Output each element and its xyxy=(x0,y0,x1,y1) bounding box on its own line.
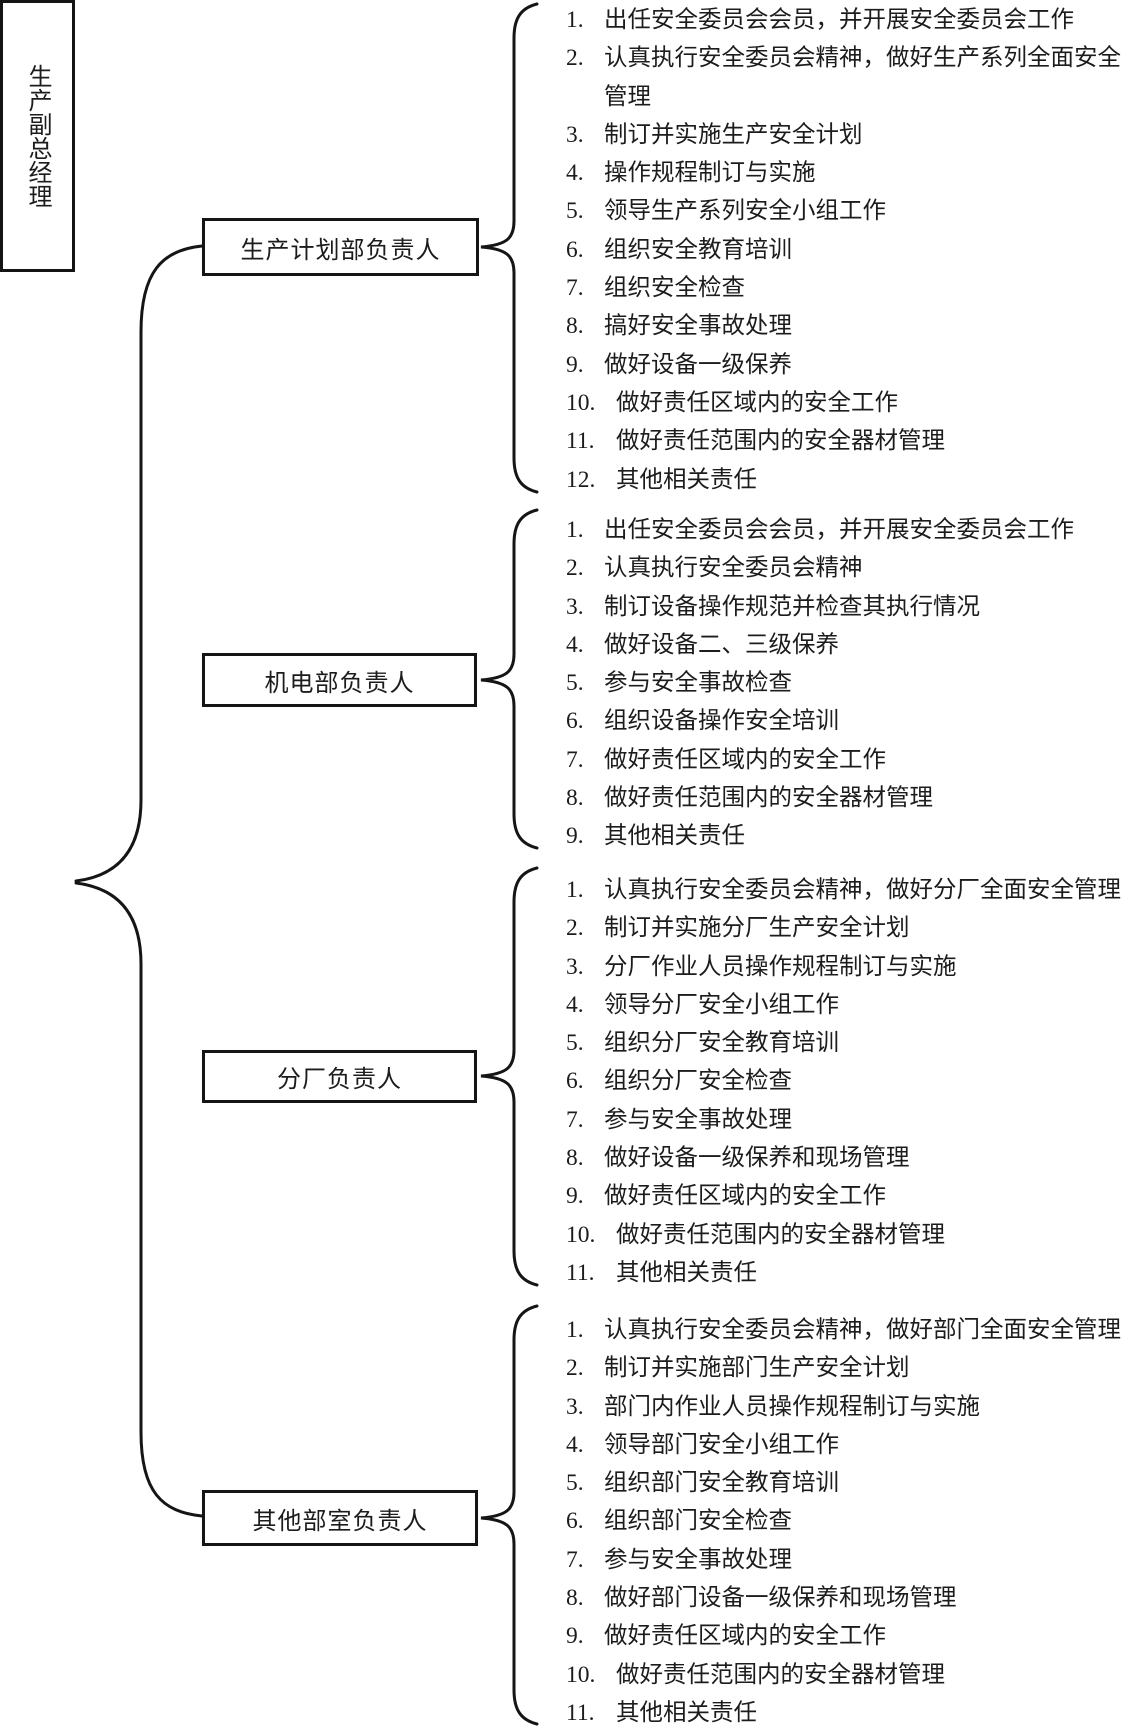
item-text: 参与安全事故处理 xyxy=(604,1541,1127,1579)
brace-icon-group-3 xyxy=(481,868,537,1285)
item-number: 7. xyxy=(566,1101,604,1139)
list-item: 4.领导分厂安全小组工作 xyxy=(566,986,1127,1024)
item-text: 部门内作业人员操作规程制订与实施 xyxy=(604,1388,1127,1426)
root-node-production-vice-gm: 生产副总经理 xyxy=(0,0,75,272)
item-number: 5. xyxy=(566,1464,604,1502)
duty-list-mechanical-electrical: 1.出任安全委员会会员，并开展安全委员会工作2.认真执行安全委员会精神3.制订设… xyxy=(566,511,1127,856)
item-number: 5. xyxy=(566,192,604,230)
list-item: 1.认真执行安全委员会精神，做好分厂全面安全管理 xyxy=(566,871,1127,909)
list-item: 11.做好责任范围内的安全器材管理 xyxy=(566,422,1127,460)
list-item: 7.参与安全事故处理 xyxy=(566,1541,1127,1579)
item-number: 3. xyxy=(566,116,604,154)
item-text: 做好责任范围内的安全器材管理 xyxy=(604,779,1127,817)
item-text: 制订并实施分厂生产安全计划 xyxy=(604,909,1127,947)
list-item: 6.组织安全教育培训 xyxy=(566,231,1127,269)
list-item: 9.做好设备一级保养 xyxy=(566,346,1127,384)
list-item: 4.操作规程制订与实施 xyxy=(566,154,1127,192)
item-number: 9. xyxy=(566,1177,604,1215)
item-number: 3. xyxy=(566,1388,604,1426)
item-number: 6. xyxy=(566,1502,604,1540)
item-text: 其他相关责任 xyxy=(616,1694,1127,1728)
item-text: 做好责任区域内的安全工作 xyxy=(604,1177,1127,1215)
list-item: 5.参与安全事故检查 xyxy=(566,664,1127,702)
list-item: 10.做好责任区域内的安全工作 xyxy=(566,384,1127,422)
item-text: 组织分厂安全教育培训 xyxy=(604,1024,1127,1062)
list-item: 8.搞好安全事故处理 xyxy=(566,307,1127,345)
item-number: 3. xyxy=(566,948,604,986)
item-text: 组织安全检查 xyxy=(604,269,1127,307)
group-box-other-departments: 其他部室负责人 xyxy=(202,1490,478,1546)
item-text: 做好责任范围内的安全器材管理 xyxy=(616,1656,1127,1694)
list-item: 3.制订设备操作规范并检查其执行情况 xyxy=(566,588,1127,626)
item-number: 1. xyxy=(566,871,604,909)
item-number: 2. xyxy=(566,549,604,587)
item-number: 12. xyxy=(566,461,616,499)
list-item: 7.组织安全检查 xyxy=(566,269,1127,307)
item-number: 1. xyxy=(566,1,604,39)
item-text: 其他相关责任 xyxy=(604,817,1127,855)
item-number: 9. xyxy=(566,817,604,855)
item-text: 制订并实施生产安全计划 xyxy=(604,116,1127,154)
list-item: 5.组织部门安全教育培训 xyxy=(566,1464,1127,1502)
list-item: 3.部门内作业人员操作规程制订与实施 xyxy=(566,1388,1127,1426)
item-text: 领导分厂安全小组工作 xyxy=(604,986,1127,1024)
list-item: 3.制订并实施生产安全计划 xyxy=(566,116,1127,154)
duty-list-other-departments: 1.认真执行安全委员会精神，做好部门全面安全管理2.制订并实施部门生产安全计划3… xyxy=(566,1311,1127,1728)
list-item: 11.其他相关责任 xyxy=(566,1254,1127,1292)
list-item: 1.出任安全委员会会员，并开展安全委员会工作 xyxy=(566,511,1127,549)
item-number: 2. xyxy=(566,39,604,77)
item-text: 做好责任区域内的安全工作 xyxy=(604,741,1127,779)
item-text: 组织设备操作安全培训 xyxy=(604,702,1127,740)
item-number: 11. xyxy=(566,1694,616,1728)
item-number: 8. xyxy=(566,307,604,345)
item-text: 认真执行安全委员会精神，做好分厂全面安全管理 xyxy=(604,871,1127,909)
list-item: 7.参与安全事故处理 xyxy=(566,1101,1127,1139)
list-item: 1.出任安全委员会会员，并开展安全委员会工作 xyxy=(566,1,1127,39)
duty-list-production-planning: 1.出任安全委员会会员，并开展安全委员会工作2.认真执行安全委员会精神，做好生产… xyxy=(566,1,1127,499)
list-item: 5.领导生产系列安全小组工作 xyxy=(566,192,1127,230)
list-item: 10.做好责任范围内的安全器材管理 xyxy=(566,1216,1127,1254)
item-number: 8. xyxy=(566,779,604,817)
item-text: 出任安全委员会会员，并开展安全委员会工作 xyxy=(604,511,1127,549)
list-item: 5.组织分厂安全教育培训 xyxy=(566,1024,1127,1062)
item-text: 领导生产系列安全小组工作 xyxy=(604,192,1127,230)
item-number: 5. xyxy=(566,1024,604,1062)
list-item: 8.做好部门设备一级保养和现场管理 xyxy=(566,1579,1127,1617)
item-number: 6. xyxy=(566,1062,604,1100)
item-text: 组织安全教育培训 xyxy=(604,231,1127,269)
item-text: 分厂作业人员操作规程制订与实施 xyxy=(604,948,1127,986)
list-item: 11.其他相关责任 xyxy=(566,1694,1127,1728)
item-text: 搞好安全事故处理 xyxy=(604,307,1127,345)
list-item: 2.制订并实施部门生产安全计划 xyxy=(566,1349,1127,1387)
connector-curve-bottom xyxy=(76,883,202,1516)
item-text: 组织部门安全检查 xyxy=(604,1502,1127,1540)
item-text: 制订并实施部门生产安全计划 xyxy=(604,1349,1127,1387)
item-number: 2. xyxy=(566,1349,604,1387)
item-text: 其他相关责任 xyxy=(616,461,1127,499)
item-text: 认真执行安全委员会精神，做好生产系列全面安全管理 xyxy=(604,39,1127,116)
item-text: 认真执行安全委员会精神 xyxy=(604,549,1127,587)
item-number: 11. xyxy=(566,1254,616,1292)
list-item: 3.分厂作业人员操作规程制订与实施 xyxy=(566,948,1127,986)
connector-curve-top xyxy=(76,246,202,881)
org-responsibility-diagram: 生产副总经理 生产计划部负责人 机电部负责人 分厂负责人 其他部室负责人 1.出… xyxy=(0,0,1133,1728)
list-item: 7.做好责任区域内的安全工作 xyxy=(566,741,1127,779)
item-number: 5. xyxy=(566,664,604,702)
item-text: 做好责任区域内的安全工作 xyxy=(616,384,1127,422)
list-item: 12.其他相关责任 xyxy=(566,461,1127,499)
item-number: 10. xyxy=(566,1216,616,1254)
item-text: 认真执行安全委员会精神，做好部门全面安全管理 xyxy=(604,1311,1127,1349)
item-number: 1. xyxy=(566,511,604,549)
group-box-branch-factory: 分厂负责人 xyxy=(202,1050,477,1103)
item-text: 做好责任范围内的安全器材管理 xyxy=(616,1216,1127,1254)
list-item: 9.做好责任区域内的安全工作 xyxy=(566,1617,1127,1655)
item-number: 8. xyxy=(566,1139,604,1177)
list-item: 2.认真执行安全委员会精神 xyxy=(566,549,1127,587)
list-item: 8.做好设备一级保养和现场管理 xyxy=(566,1139,1127,1177)
list-item: 10.做好责任范围内的安全器材管理 xyxy=(566,1656,1127,1694)
item-text: 组织部门安全教育培训 xyxy=(604,1464,1127,1502)
list-item: 8.做好责任范围内的安全器材管理 xyxy=(566,779,1127,817)
item-text: 做好设备一级保养和现场管理 xyxy=(604,1139,1127,1177)
item-number: 9. xyxy=(566,1617,604,1655)
list-item: 9.其他相关责任 xyxy=(566,817,1127,855)
item-number: 8. xyxy=(566,1579,604,1617)
item-text: 做好责任区域内的安全工作 xyxy=(604,1617,1127,1655)
item-text: 出任安全委员会会员，并开展安全委员会工作 xyxy=(604,1,1127,39)
brace-icon-group-2 xyxy=(481,510,537,848)
group-box-mechanical-electrical: 机电部负责人 xyxy=(202,653,477,707)
list-item: 2.制订并实施分厂生产安全计划 xyxy=(566,909,1127,947)
duty-list-branch-factory: 1.认真执行安全委员会精神，做好分厂全面安全管理2.制订并实施分厂生产安全计划3… xyxy=(566,871,1127,1292)
item-number: 2. xyxy=(566,909,604,947)
brace-icon-group-4 xyxy=(481,1306,537,1724)
item-number: 10. xyxy=(566,384,616,422)
item-text: 做好设备一级保养 xyxy=(604,346,1127,384)
item-number: 4. xyxy=(566,1426,604,1464)
item-text: 做好设备二、三级保养 xyxy=(604,626,1127,664)
item-text: 制订设备操作规范并检查其执行情况 xyxy=(604,588,1127,626)
item-text: 其他相关责任 xyxy=(616,1254,1127,1292)
list-item: 6.组织设备操作安全培训 xyxy=(566,702,1127,740)
brace-icon-group-1 xyxy=(481,4,537,492)
list-item: 4.领导部门安全小组工作 xyxy=(566,1426,1127,1464)
item-number: 6. xyxy=(566,231,604,269)
item-number: 10. xyxy=(566,1656,616,1694)
list-item: 2.认真执行安全委员会精神，做好生产系列全面安全管理 xyxy=(566,39,1127,116)
group-box-production-planning: 生产计划部负责人 xyxy=(202,218,479,276)
item-text: 操作规程制订与实施 xyxy=(604,154,1127,192)
item-number: 9. xyxy=(566,346,604,384)
item-number: 7. xyxy=(566,269,604,307)
item-number: 6. xyxy=(566,702,604,740)
list-item: 6.组织分厂安全检查 xyxy=(566,1062,1127,1100)
item-text: 参与安全事故检查 xyxy=(604,664,1127,702)
item-text: 做好部门设备一级保养和现场管理 xyxy=(604,1579,1127,1617)
list-item: 1.认真执行安全委员会精神，做好部门全面安全管理 xyxy=(566,1311,1127,1349)
item-number: 4. xyxy=(566,154,604,192)
item-number: 4. xyxy=(566,626,604,664)
item-number: 3. xyxy=(566,588,604,626)
item-number: 1. xyxy=(566,1311,604,1349)
list-item: 6.组织部门安全检查 xyxy=(566,1502,1127,1540)
item-number: 7. xyxy=(566,741,604,779)
item-text: 做好责任范围内的安全器材管理 xyxy=(616,422,1127,460)
item-number: 4. xyxy=(566,986,604,1024)
item-text: 领导部门安全小组工作 xyxy=(604,1426,1127,1464)
item-text: 组织分厂安全检查 xyxy=(604,1062,1127,1100)
list-item: 4.做好设备二、三级保养 xyxy=(566,626,1127,664)
item-text: 参与安全事故处理 xyxy=(604,1101,1127,1139)
item-number: 7. xyxy=(566,1541,604,1579)
item-number: 11. xyxy=(566,422,616,460)
list-item: 9.做好责任区域内的安全工作 xyxy=(566,1177,1127,1215)
